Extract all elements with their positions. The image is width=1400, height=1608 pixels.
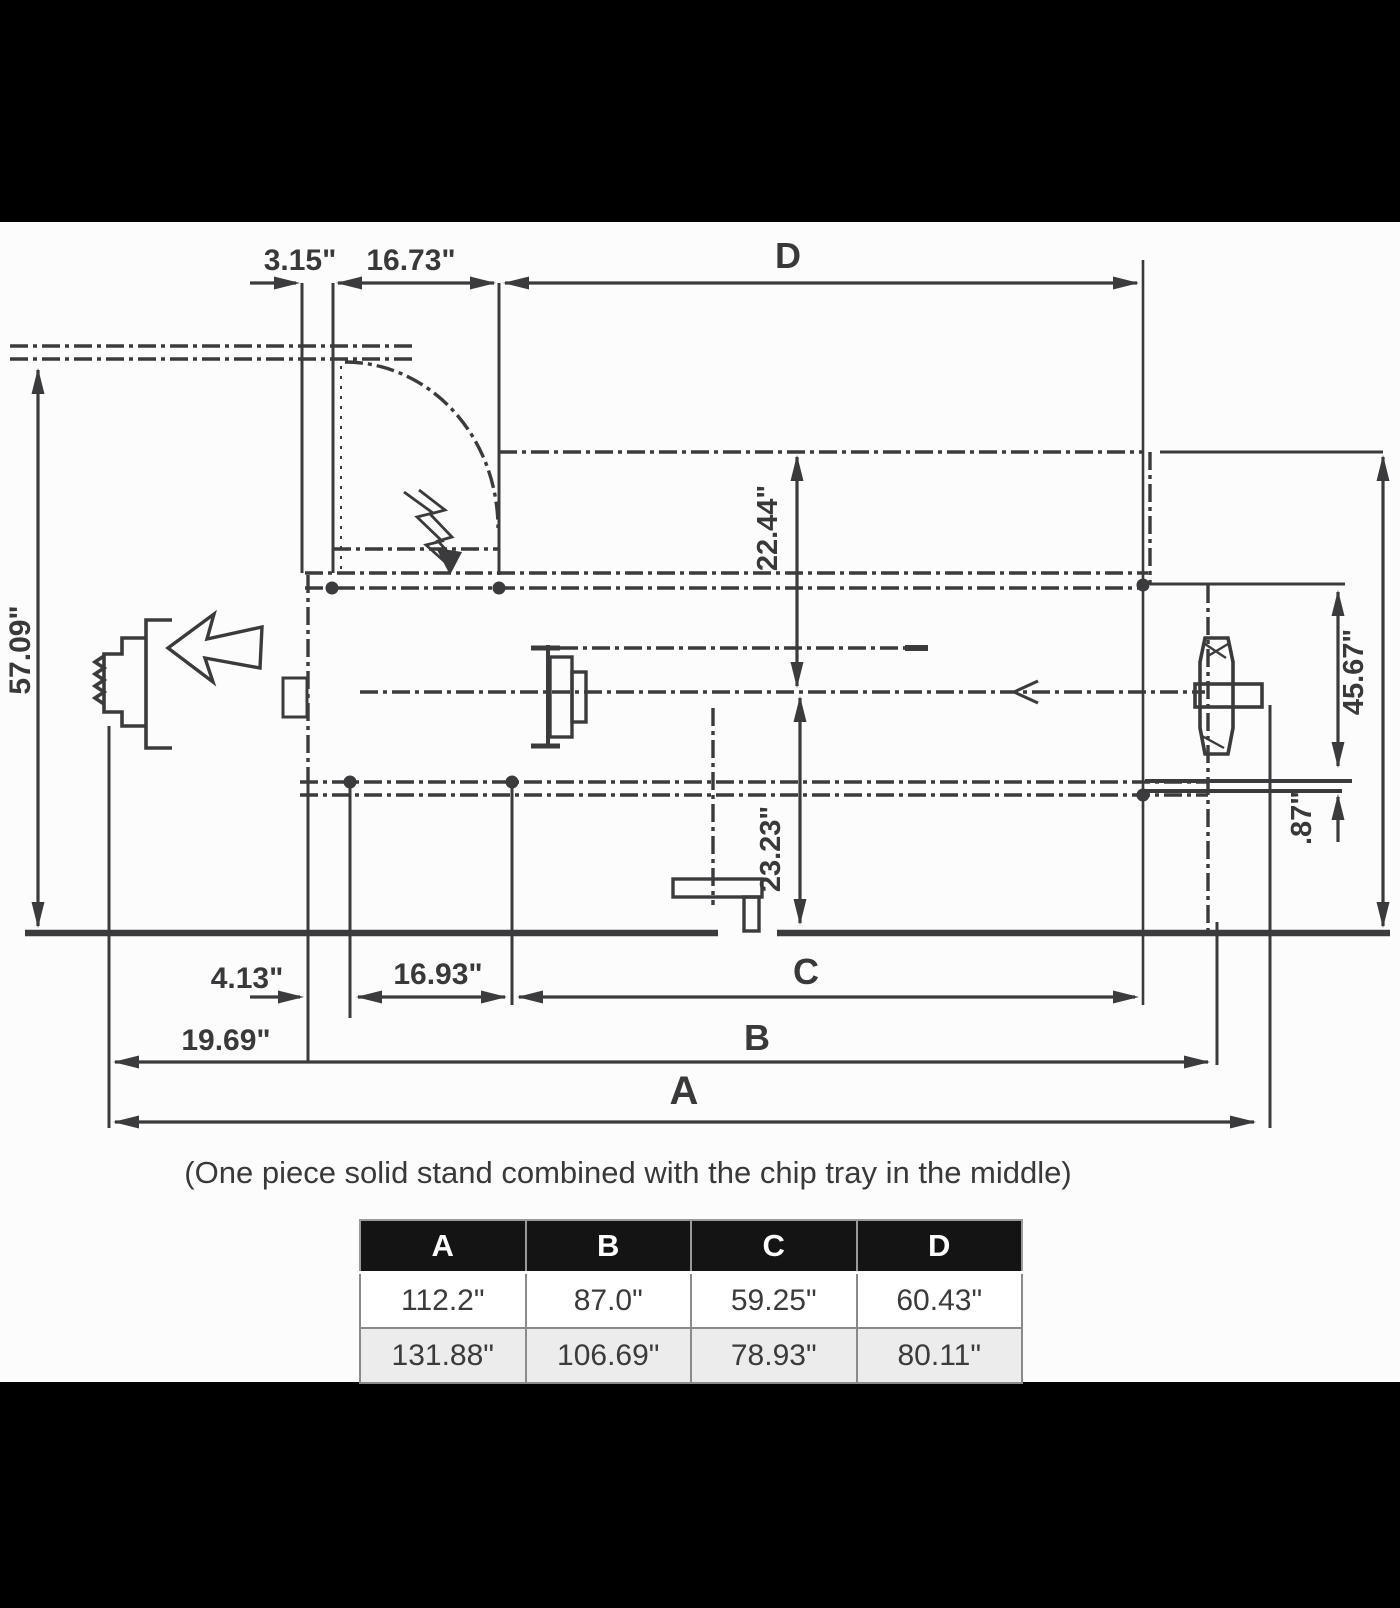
dimension-table-head: A B C D xyxy=(360,1220,1022,1273)
table-cell: 78.93" xyxy=(691,1328,857,1383)
dim-label-door-width: 16.73" xyxy=(366,244,455,277)
table-cell: 87.0" xyxy=(526,1273,692,1329)
dimension-table: A B C D 112.2" 87.0" 59.25" 60.43" 131.8… xyxy=(359,1219,1023,1384)
dim-label-base-offset: 4.13" xyxy=(211,962,284,995)
scanned-page: 3.15" 16.73" D 57.09" 22.44" 45.67" .87"… xyxy=(0,0,1400,1608)
dim-label-d: D xyxy=(775,235,801,276)
dim-label-foot-height: .87" xyxy=(1286,791,1318,845)
table-cell: 60.43" xyxy=(857,1273,1023,1329)
table-cell: 80.11" xyxy=(857,1328,1023,1383)
drawing-paper xyxy=(0,222,1400,1382)
table-cell: 112.2" xyxy=(360,1273,526,1329)
dim-label-tray-height: 23.23" xyxy=(755,806,787,892)
dim-label-c: C xyxy=(793,951,819,992)
table-row-model1: 112.2" 87.0" 59.25" 60.43" xyxy=(360,1273,1022,1329)
table-row-model2: 131.88" 106.69" 78.93" 80.11" xyxy=(360,1328,1022,1383)
table-header-c: C xyxy=(691,1220,857,1273)
table-header-a: A xyxy=(360,1220,526,1273)
dim-label-b: B xyxy=(744,1017,770,1058)
table-cell: 131.88" xyxy=(360,1328,526,1383)
dim-label-overall-height: 57.09" xyxy=(4,605,37,694)
dim-label-top-offset: 3.15" xyxy=(264,244,337,277)
table-header-d: D xyxy=(857,1220,1023,1273)
dim-label-stand-height: 45.67" xyxy=(1338,629,1370,715)
dimension-table-body: 112.2" 87.0" 59.25" 60.43" 131.88" 106.6… xyxy=(360,1273,1022,1384)
dim-label-left-section: 19.69" xyxy=(181,1024,270,1057)
table-header-row: A B C D xyxy=(360,1220,1022,1273)
dim-label-spindle-height: 22.44" xyxy=(752,485,784,571)
dim-label-a: A xyxy=(670,1069,699,1113)
table-cell: 106.69" xyxy=(526,1328,692,1383)
table-cell: 59.25" xyxy=(691,1273,857,1329)
table-header-b: B xyxy=(526,1220,692,1273)
figure-caption: (One piece solid stand combined with the… xyxy=(184,1155,1071,1190)
dim-label-door-front-width: 16.93" xyxy=(393,958,482,991)
